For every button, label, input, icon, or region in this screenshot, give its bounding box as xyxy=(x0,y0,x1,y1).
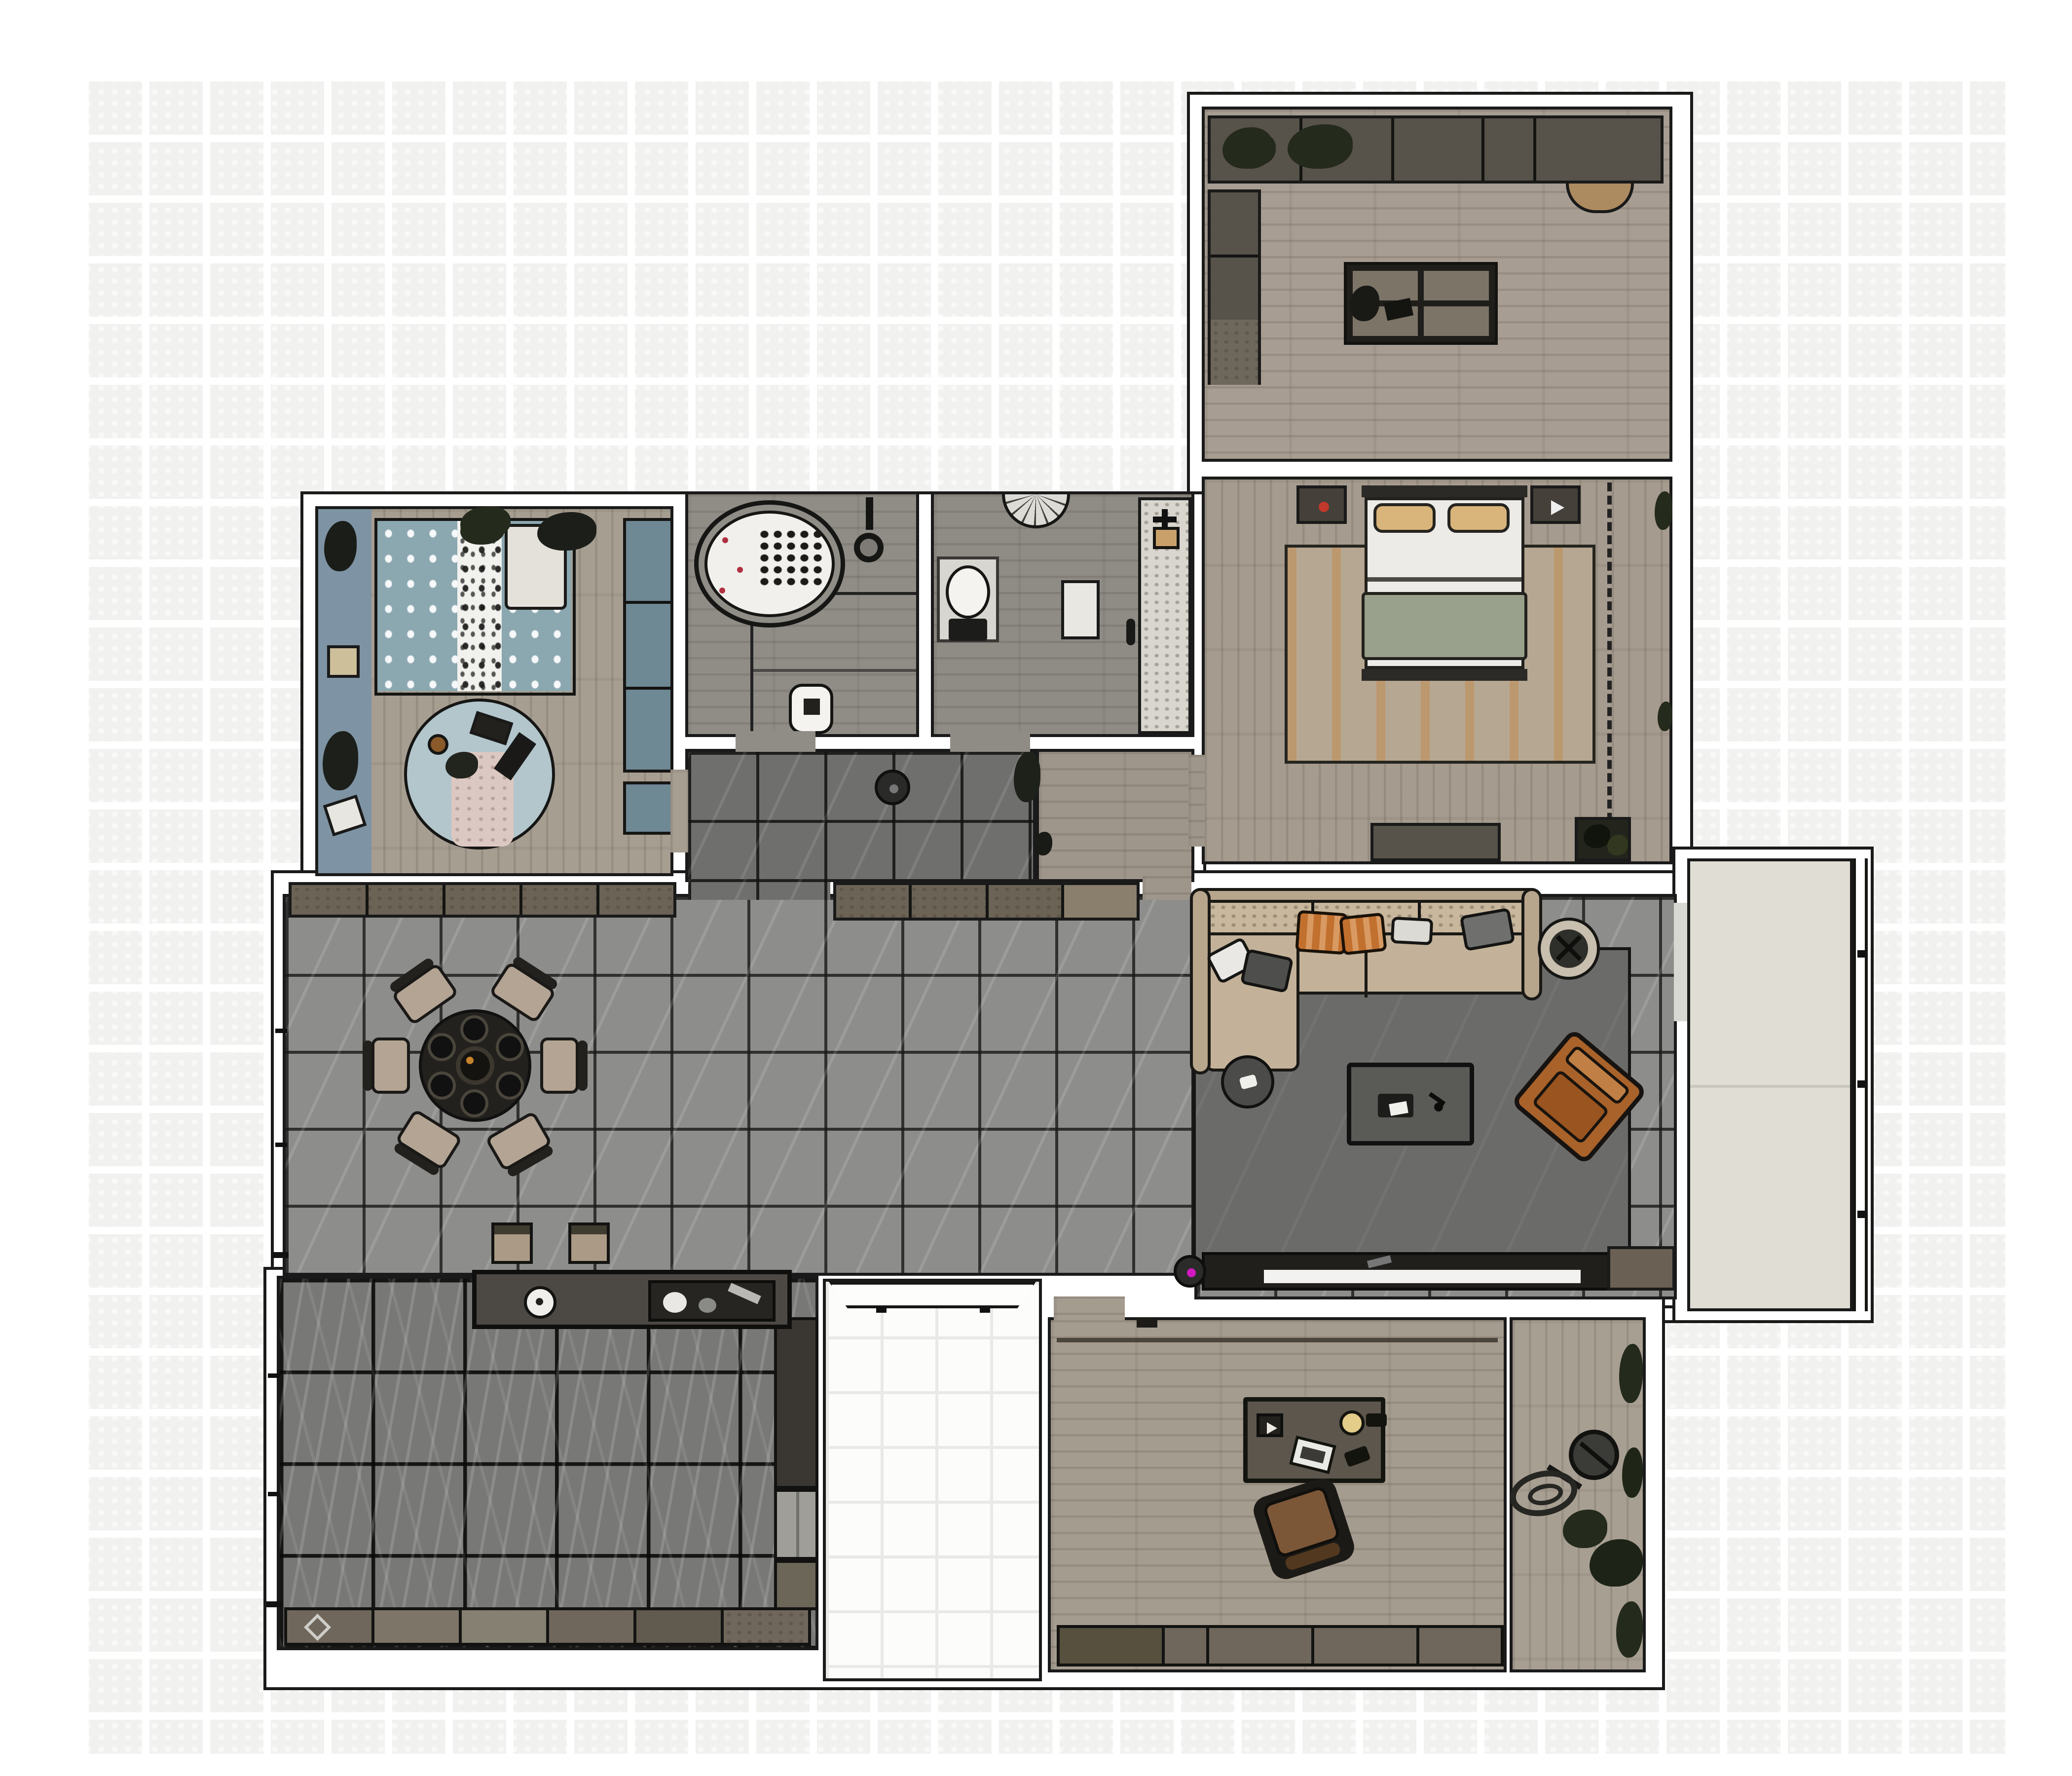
pillow-light xyxy=(1391,917,1434,945)
kitchen-tall-cabinet xyxy=(774,1317,818,1489)
cabinet-stone-top xyxy=(1211,320,1258,385)
wc-vanity-column xyxy=(1138,497,1191,734)
toy-icon xyxy=(445,752,478,778)
plate xyxy=(431,1036,453,1058)
counter-segment xyxy=(1537,118,1661,181)
sideboard-segment xyxy=(292,885,369,915)
cabinet-segment xyxy=(636,1610,724,1643)
fan-blade-icon xyxy=(1579,1442,1612,1470)
door-hinge-icon xyxy=(876,1307,887,1313)
cabinet-segment xyxy=(549,1610,636,1643)
kids-round-rug xyxy=(404,699,555,850)
vacuum-light xyxy=(1187,1268,1196,1277)
round-dining-table xyxy=(419,1009,531,1122)
passage-bedroom-door xyxy=(1188,755,1205,847)
fridge-door-split xyxy=(796,1492,799,1557)
railing-post xyxy=(1857,1080,1865,1088)
cabinet-divider xyxy=(1211,255,1258,258)
laptop xyxy=(1289,1436,1336,1475)
wall-plant-icon xyxy=(1658,702,1672,731)
kids-blanket-spotted xyxy=(457,521,502,691)
plate xyxy=(499,1074,521,1097)
petal xyxy=(722,537,728,543)
plant-icon xyxy=(1584,824,1610,848)
sideboard-left xyxy=(289,882,676,918)
study-side-cabinet xyxy=(1208,189,1261,385)
cabinet-segment xyxy=(724,1610,808,1643)
entrance-door xyxy=(829,1282,1036,1308)
passage-wc-door xyxy=(950,731,1030,752)
sideboard-segment xyxy=(599,885,673,915)
sink-basin-icon xyxy=(1153,527,1180,549)
pillow-orange-striped xyxy=(1339,913,1387,956)
standing-fan-head xyxy=(1569,1430,1619,1480)
railing-post xyxy=(1857,1211,1865,1218)
sideboard-segment xyxy=(836,885,912,918)
room-entry-porch xyxy=(823,1279,1042,1681)
plate xyxy=(499,1036,521,1058)
door-handle-icon xyxy=(1126,619,1135,645)
passage-hall-wood xyxy=(1143,876,1191,900)
toy-book xyxy=(323,794,367,836)
vacuum-button xyxy=(889,784,898,793)
toy-box xyxy=(327,645,360,678)
dining-chair xyxy=(540,1037,588,1094)
plate xyxy=(463,1018,485,1040)
sideboard-segment xyxy=(912,885,988,918)
wc-floor-mat xyxy=(1061,580,1100,639)
phone xyxy=(1343,1445,1370,1468)
toilet-tank xyxy=(949,619,987,641)
counter-segment xyxy=(1485,118,1537,181)
office-chair xyxy=(1250,1475,1358,1583)
sideboard-segment xyxy=(369,885,445,915)
office-cabinet-row xyxy=(1057,1625,1504,1666)
corridor-dark-tiles xyxy=(685,749,1036,882)
pot-icon xyxy=(663,1292,687,1313)
side-table xyxy=(1221,1055,1274,1109)
tile-line xyxy=(750,669,916,672)
coffee-table xyxy=(1347,1063,1474,1146)
shower-arm-icon xyxy=(866,497,873,530)
room-study xyxy=(1202,107,1672,462)
study-island-table xyxy=(1344,262,1498,345)
pillow xyxy=(1447,503,1510,533)
floor-plan-canvas xyxy=(0,0,2072,1776)
console-cabinet xyxy=(1607,1246,1675,1291)
kitchen-island xyxy=(472,1270,792,1329)
cabinet-segment xyxy=(287,1610,374,1643)
room-wc xyxy=(931,491,1194,737)
counter-stool xyxy=(1566,184,1634,213)
passage-bath-door xyxy=(736,731,815,752)
closet-divider xyxy=(626,687,670,690)
plant-icon xyxy=(1616,1601,1643,1658)
passage-office-door xyxy=(1054,1296,1125,1320)
bedroom-planter xyxy=(1575,817,1631,861)
plant-icon xyxy=(1622,1447,1643,1498)
kids-closet-lower xyxy=(623,781,673,835)
window-tick xyxy=(268,1373,280,1378)
kids-duvet xyxy=(377,521,457,691)
potted-tree xyxy=(1538,918,1600,980)
corridor-wood-hall xyxy=(1036,749,1194,882)
window-tick xyxy=(275,1029,287,1033)
window-tick xyxy=(268,1492,280,1496)
balcony-glass-door xyxy=(1674,903,1687,1021)
room-dining-hall xyxy=(283,894,1194,1276)
room-bathroom xyxy=(685,491,919,737)
cabinet-segment xyxy=(1209,1628,1314,1664)
sideboard-right xyxy=(833,882,1140,921)
oval-bathtub xyxy=(694,500,845,628)
wall-vent-icon xyxy=(1137,1317,1157,1328)
pillow xyxy=(1373,503,1436,533)
closet-divider xyxy=(626,601,670,604)
faucet-icon xyxy=(1153,517,1177,522)
toy-ball xyxy=(428,734,448,755)
cabinet-segment xyxy=(1314,1628,1419,1664)
passage-corridor-hall xyxy=(688,879,830,900)
lamp-base xyxy=(1366,1413,1387,1427)
cabinet-segment xyxy=(374,1610,462,1643)
desk-chair-icon xyxy=(1350,286,1379,321)
double-bed xyxy=(1362,485,1527,681)
plant-icon xyxy=(1590,1539,1643,1587)
headboard xyxy=(1362,485,1527,497)
plant-icon xyxy=(1607,835,1628,855)
cabinet-segment xyxy=(1419,1628,1501,1664)
nightstand-right xyxy=(1530,485,1581,524)
window-tick xyxy=(272,1252,289,1258)
nightstand-left xyxy=(1296,485,1347,524)
sectional-sofa xyxy=(1199,888,1533,1077)
bar-stool xyxy=(568,1222,610,1264)
sink-diamond-icon xyxy=(304,1614,331,1641)
room-corridor xyxy=(685,749,1194,882)
island-cooktop xyxy=(648,1280,776,1322)
passage-kids-door xyxy=(670,770,688,852)
toys-on-headboard xyxy=(460,506,511,539)
console-item xyxy=(1367,1255,1392,1268)
sideboard-segment xyxy=(988,885,1064,918)
washing-machine xyxy=(789,684,833,734)
coiled-hose xyxy=(1506,1465,1582,1522)
washer-door xyxy=(804,699,820,715)
bed-blanket xyxy=(1362,592,1527,660)
window-tick xyxy=(275,1143,287,1147)
desk-chair-icon xyxy=(323,731,358,790)
plate xyxy=(463,1092,485,1114)
room-terrace xyxy=(1510,1317,1646,1672)
cabinet-segment xyxy=(462,1610,549,1643)
room-office xyxy=(1048,1317,1507,1672)
room-master-bedroom xyxy=(1202,477,1672,864)
sheet-fold-line xyxy=(1365,577,1524,581)
kids-wall-panel xyxy=(318,509,371,873)
wall-plant-icon xyxy=(1655,491,1672,530)
play-icon xyxy=(1551,500,1564,515)
railing-post xyxy=(1857,950,1865,958)
plate xyxy=(431,1074,453,1097)
sideboard-segment xyxy=(1064,885,1137,918)
desk-speaker xyxy=(1257,1413,1283,1437)
robot-vacuum xyxy=(1174,1255,1206,1288)
toy-icon xyxy=(469,711,513,745)
sofa-armrest-left xyxy=(1190,888,1211,1074)
bar-stool xyxy=(491,1222,533,1264)
petal xyxy=(737,567,743,573)
shower-head-icon xyxy=(854,533,884,562)
table-lamp-icon xyxy=(1434,1103,1443,1111)
center-bowl xyxy=(460,1051,490,1080)
desk-lamp xyxy=(1339,1410,1365,1436)
book-icon xyxy=(1239,1074,1258,1090)
utensil-icon xyxy=(728,1283,761,1304)
toilet-bowl xyxy=(946,565,990,619)
toys-icon xyxy=(324,521,357,571)
sideboard-segment xyxy=(522,885,599,915)
food-icon xyxy=(466,1057,474,1064)
corner-basin xyxy=(1002,494,1070,528)
table-panel xyxy=(1424,306,1489,336)
balcony-railing xyxy=(1853,858,1868,1311)
tv-console xyxy=(1202,1252,1655,1291)
room-kitchen xyxy=(277,1276,818,1650)
kitchen-base-cabinets xyxy=(284,1607,811,1646)
drain-icon xyxy=(536,1298,543,1305)
tv-screen xyxy=(1264,1270,1581,1283)
bedroom-dresser xyxy=(1370,823,1501,861)
fridge xyxy=(774,1489,818,1560)
kitchen-lower-cabinet xyxy=(774,1560,818,1610)
study-wall-counter xyxy=(1208,115,1664,184)
table-panel xyxy=(1424,271,1489,300)
robot-vacuum xyxy=(875,770,910,805)
kids-closet-column xyxy=(623,518,673,773)
petal xyxy=(719,588,725,593)
cabinet-segment xyxy=(1165,1628,1209,1664)
counter-segment xyxy=(1394,118,1485,181)
plant-icon xyxy=(1619,1344,1643,1403)
door-hinge-icon xyxy=(980,1307,990,1313)
footboard xyxy=(1362,669,1527,681)
alarm-clock-icon xyxy=(1319,502,1329,512)
cabinet-segment xyxy=(1060,1628,1165,1664)
office-desk xyxy=(1243,1397,1385,1483)
shoes-icon xyxy=(1035,832,1052,855)
room-balcony xyxy=(1687,858,1853,1311)
room-kids-bedroom xyxy=(315,506,673,876)
window-sill-line xyxy=(1057,1338,1498,1342)
balcony-seam xyxy=(1690,1085,1850,1087)
dining-chair xyxy=(363,1037,410,1094)
sideboard-segment xyxy=(445,885,522,915)
window-tick xyxy=(266,1601,283,1607)
flower-cluster xyxy=(758,528,823,588)
plant-icon xyxy=(1563,1510,1607,1548)
wardrobe-dashed-boundary xyxy=(1607,482,1612,861)
